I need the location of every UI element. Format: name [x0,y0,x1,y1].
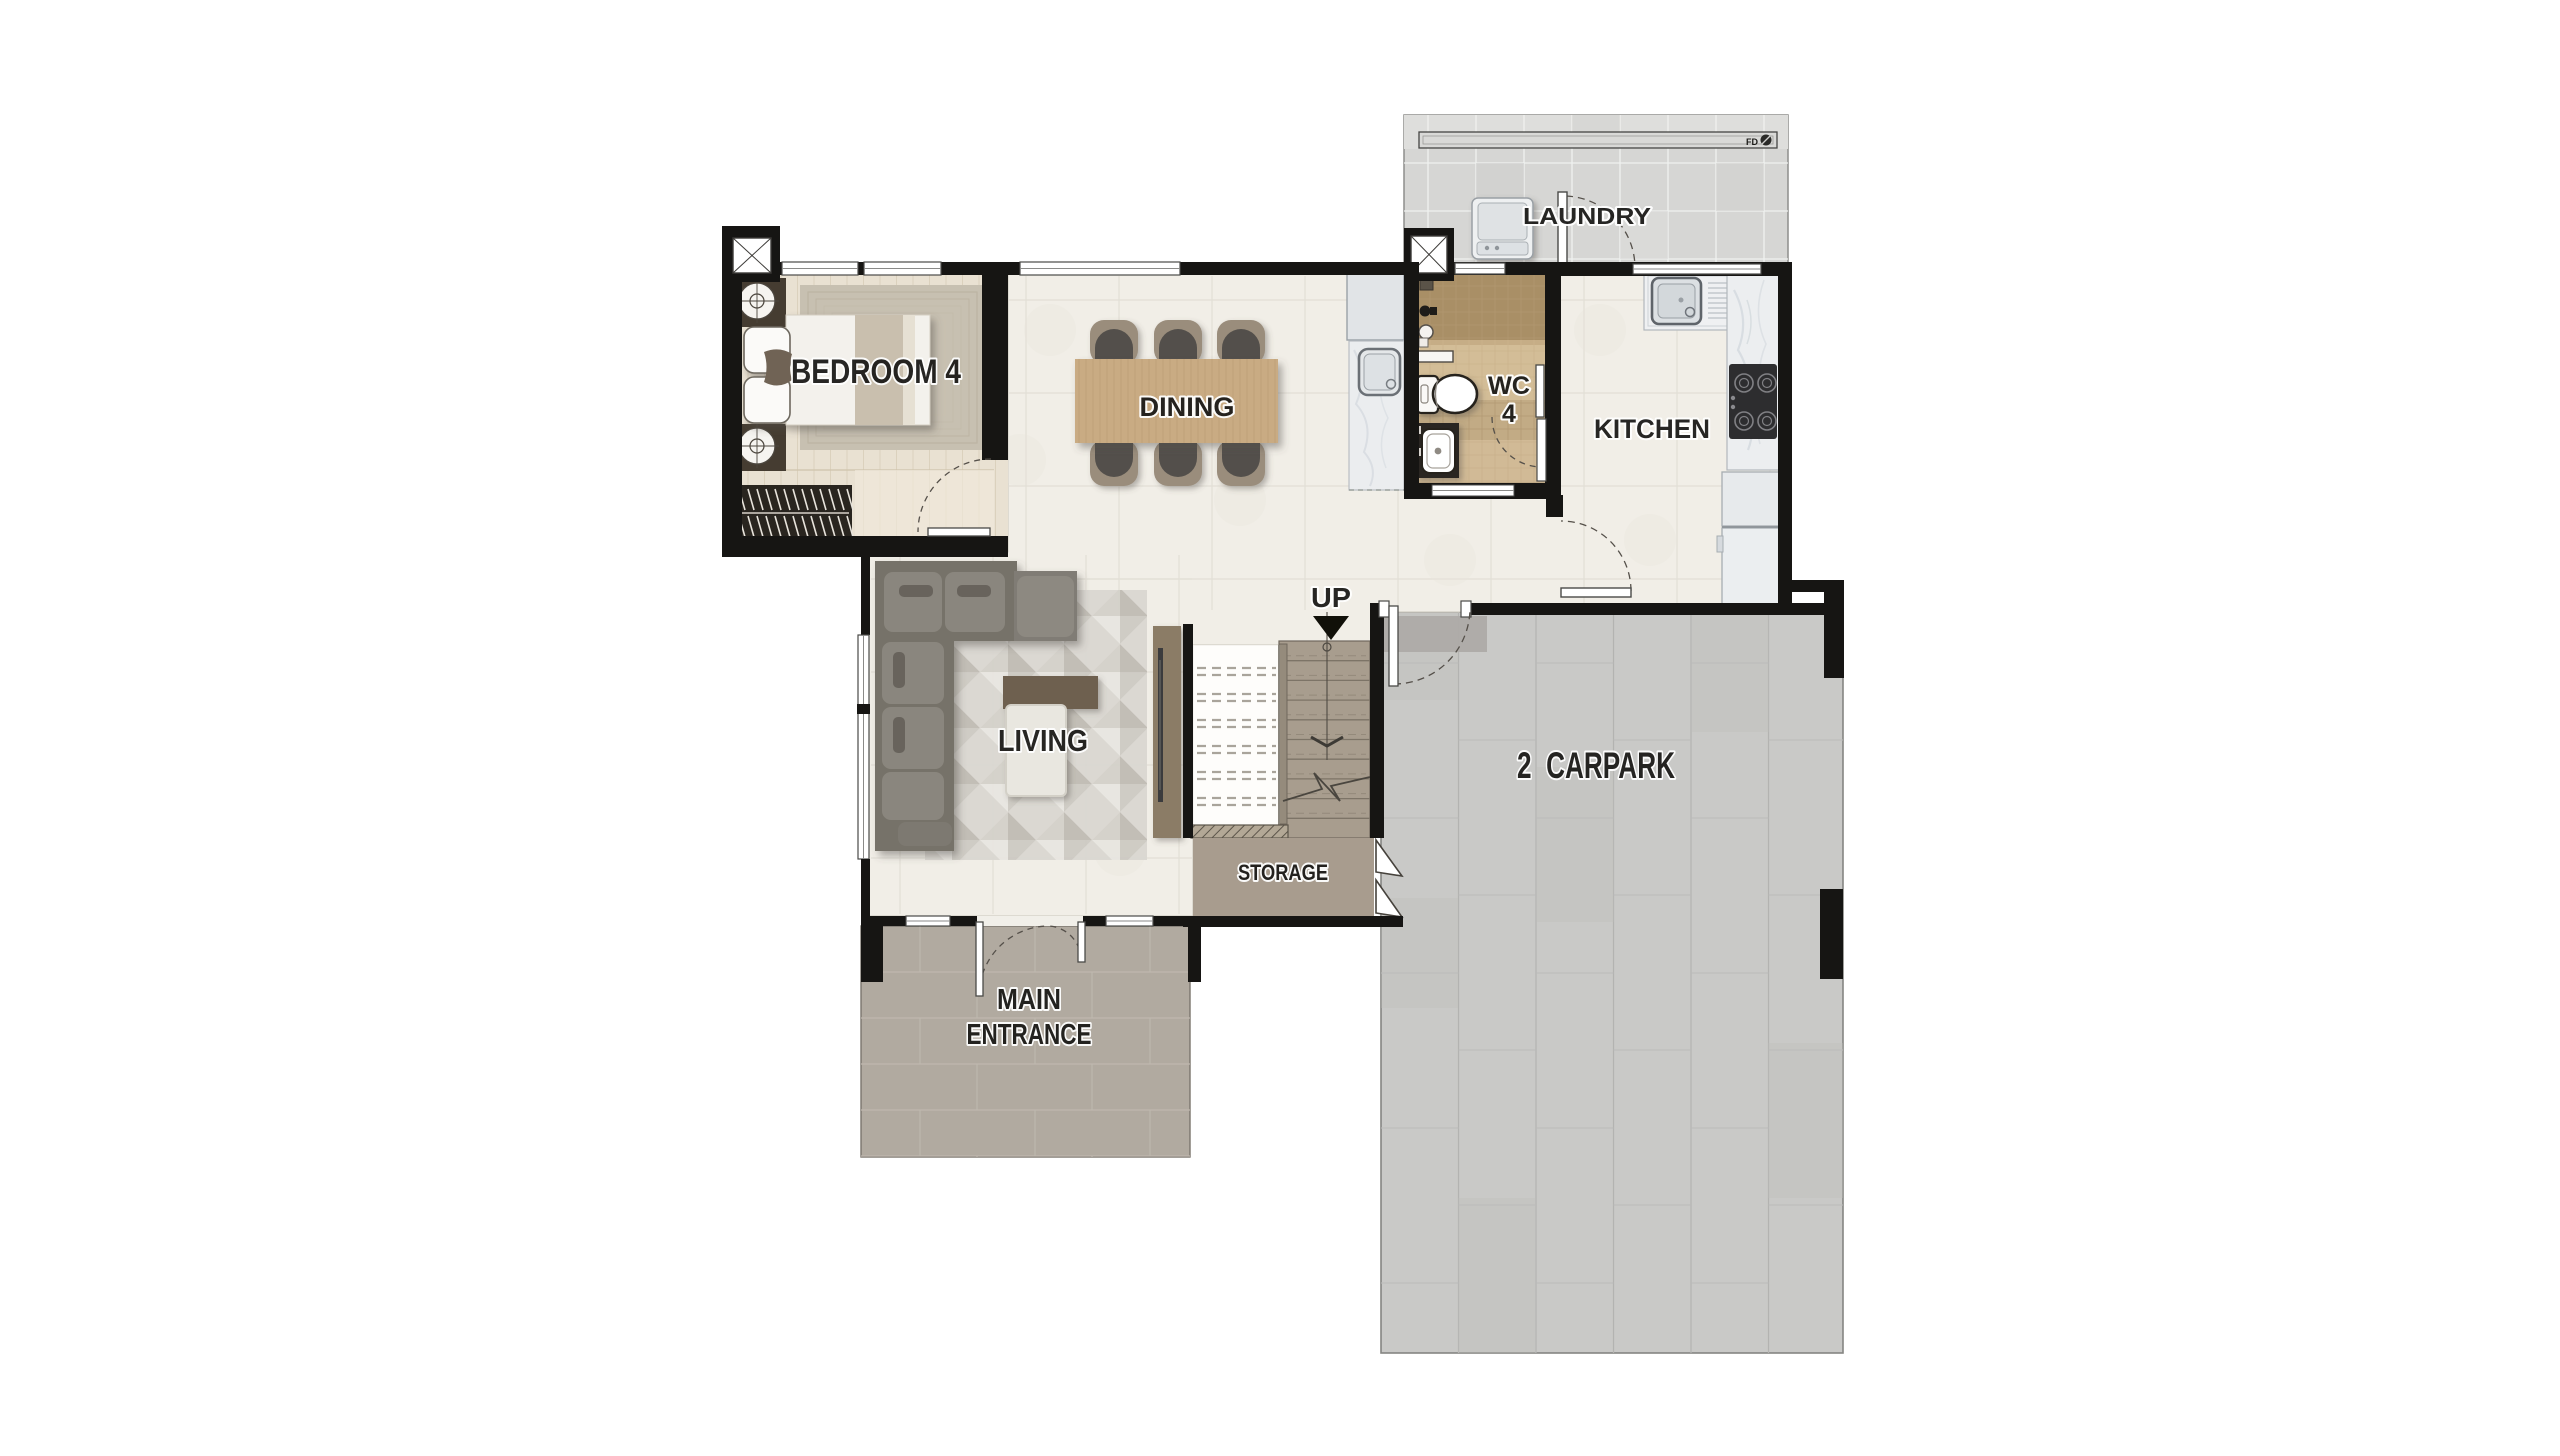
svg-text:LIVING: LIVING [998,723,1088,758]
svg-text:ENTRANCE: ENTRANCE [967,1019,1092,1051]
svg-text:WC: WC [1488,372,1530,400]
svg-text:MAIN: MAIN [997,984,1061,1016]
svg-text:DINING: DINING [1140,392,1235,422]
svg-text:LAUNDRY: LAUNDRY [1523,203,1651,229]
svg-text:KITCHEN: KITCHEN [1594,414,1710,444]
svg-text:4: 4 [1502,400,1516,428]
svg-text:2 CARPARK: 2 CARPARK [1517,745,1675,786]
svg-text:BEDROOM 4: BEDROOM 4 [791,353,961,391]
svg-text:UP: UP [1311,582,1351,613]
svg-text:STORAGE: STORAGE [1238,860,1328,885]
svg-text:FD: FD [1746,137,1758,147]
